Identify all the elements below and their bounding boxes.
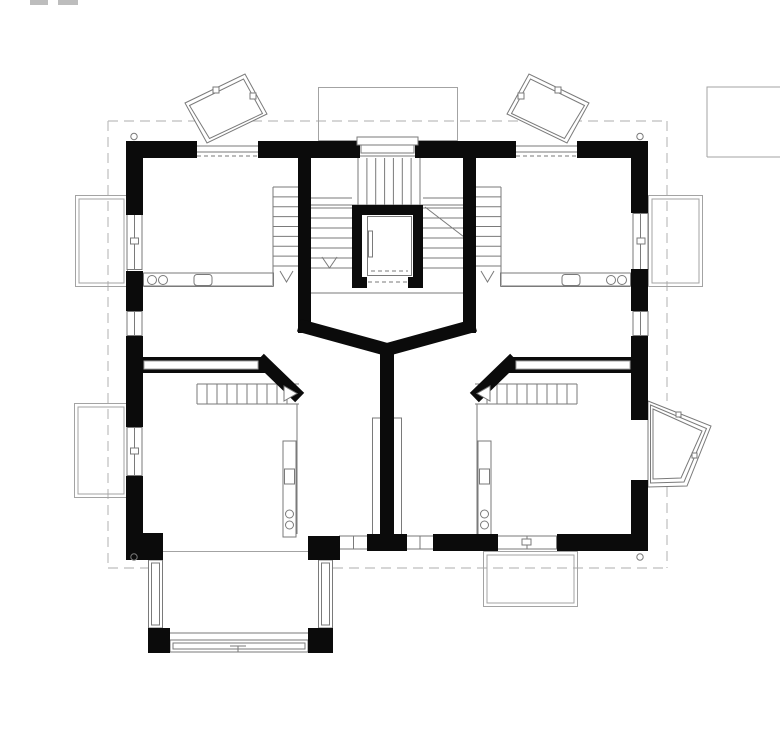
porch-bay [149, 552, 333, 653]
counter-lower-left [283, 441, 296, 537]
bay-window-lower-right [648, 401, 711, 487]
vanity-upper-left [144, 273, 274, 286]
edge-artifact-marks [30, 0, 78, 5]
dormer-top-left [185, 74, 267, 143]
stair-run-outer-left [273, 187, 298, 285]
balcony-bottom [484, 552, 578, 607]
stair-run-outer-right [476, 187, 501, 285]
adjacent-structure-outline [707, 87, 780, 157]
floor-plan-drawing [0, 0, 780, 733]
floor-plan [0, 0, 780, 733]
porch-pillars [137, 536, 340, 653]
balcony-upper-right [649, 196, 703, 287]
dormer-top-right [507, 74, 589, 143]
balcony-lower-left [75, 404, 128, 498]
elevator-car [368, 217, 412, 283]
pocket-door-right [516, 361, 630, 369]
counter-lower-right [478, 441, 491, 537]
balcony-upper-left [76, 196, 128, 287]
pocket-door-left [144, 361, 258, 369]
vanity-upper-right [501, 273, 631, 286]
dormer-top-center [319, 88, 458, 141]
stair-window-sill [357, 137, 418, 156]
